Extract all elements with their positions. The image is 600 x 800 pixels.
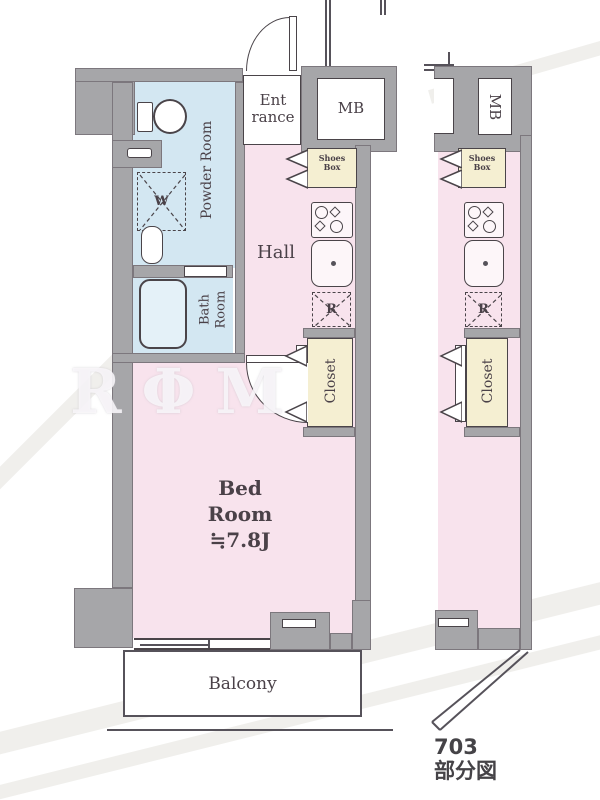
wall-cut-line	[384, 0, 386, 15]
wall-cut-line	[325, 0, 327, 66]
wall-segment	[464, 427, 520, 437]
hall-label: Hall	[245, 243, 307, 264]
burner-icon	[330, 220, 343, 233]
diagonal-cut-line	[420, 645, 535, 740]
bath-room-label-line1: Bath	[197, 294, 212, 325]
shoes-box-label-partial: Shoes Box	[459, 154, 505, 172]
wall-segment	[270, 612, 330, 650]
faucet-dot	[483, 261, 488, 266]
watermark: RΦM	[70, 355, 304, 428]
window-slot	[282, 619, 316, 628]
bedroom-label-line1: Bed	[218, 476, 262, 500]
toilet-tank-icon	[137, 102, 153, 132]
burner-icon	[315, 206, 328, 219]
wall-segment	[330, 633, 352, 650]
bath-room-label-line2: Room	[213, 291, 228, 329]
wall-segment	[464, 328, 520, 338]
folding-door-icon	[284, 149, 308, 189]
wall-niche	[127, 148, 152, 158]
wall-segment	[74, 588, 133, 648]
bedroom-label-line2: Room	[208, 502, 272, 526]
faucet-dot	[331, 261, 336, 266]
wall-segment	[303, 328, 355, 338]
folding-door-icon	[438, 345, 462, 423]
wall-segment	[355, 145, 371, 650]
sliding-window-icon	[134, 638, 270, 650]
shoes-box-label-line2: Box	[474, 162, 491, 172]
entrance-label-line1: Ent	[260, 91, 287, 109]
wall-segment	[303, 427, 355, 437]
toilet-bowl-icon	[153, 99, 187, 134]
refrigerator-space: R	[312, 292, 351, 327]
refrigerator-label: R	[326, 302, 337, 317]
refrigerator-label: R	[478, 302, 489, 317]
wall-segment	[352, 600, 371, 650]
powder-room-label: Powder Room	[199, 105, 215, 235]
washer-space: W	[137, 172, 186, 231]
bedroom-size-label: ≒7.8J	[209, 528, 270, 552]
balcony-outer-line	[107, 729, 393, 731]
wall-cut-line	[380, 0, 382, 15]
wall-cut-line	[329, 0, 331, 66]
washer-label: W	[154, 194, 169, 209]
entrance-door-arc-icon	[246, 17, 290, 71]
caption-unit-number: 703	[434, 735, 478, 759]
entrance-label: Ent rance	[244, 92, 302, 127]
mb-label-partial: MB	[486, 87, 504, 127]
entrance-label-line2: rance	[251, 108, 294, 126]
bathtub-icon	[139, 279, 187, 349]
wall-segment	[435, 610, 478, 650]
burner-icon	[468, 206, 481, 219]
mb-label: MB	[317, 100, 385, 117]
washbasin-icon	[141, 226, 163, 264]
bedroom-label: Bed Room ≒7.8J	[170, 475, 310, 553]
wall-segment	[75, 68, 243, 82]
entrance-remnant	[434, 78, 454, 134]
refrigerator-space-partial: R	[465, 292, 502, 327]
entrance-door-leaf	[289, 16, 297, 71]
caption-partial-text: 部分図	[434, 759, 497, 783]
closet-label: Closet	[323, 341, 339, 421]
window-slot	[438, 618, 469, 627]
bath-room-label: Bath Room	[197, 280, 228, 340]
partial-view-caption: 703 部分図	[434, 735, 497, 783]
balcony-label: Balcony	[123, 675, 362, 695]
wall-segment	[520, 135, 532, 650]
bath-door	[184, 266, 227, 277]
shoes-box-label: Shoes Box	[308, 154, 356, 172]
closet-label-partial: Closet	[480, 341, 496, 421]
shoes-box-label-line2: Box	[324, 162, 341, 172]
burner-icon	[483, 220, 496, 233]
floor-plan-canvas: W R Ent rance MB Shoes Box Hall Powder R…	[0, 0, 600, 800]
